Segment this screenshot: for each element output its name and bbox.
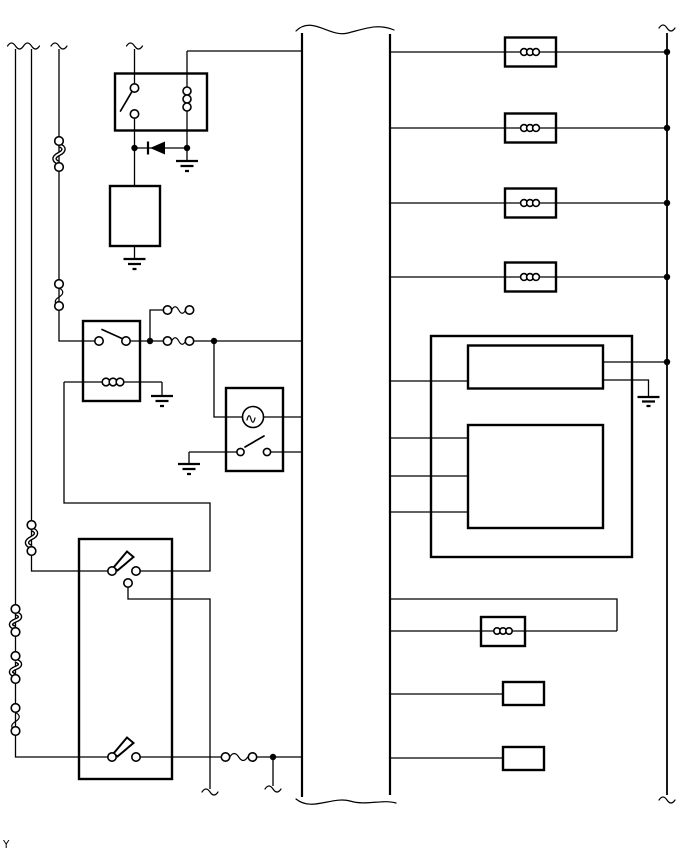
control-module-upper — [468, 346, 603, 389]
wire-break-icon — [659, 797, 675, 803]
fusible-link-icon — [11, 652, 20, 684]
ground-bars — [124, 259, 146, 269]
coil-box-loop — [390, 599, 617, 646]
wire-break-icon — [24, 43, 40, 49]
coil-loop — [533, 125, 540, 132]
page-corner-label: Y — [2, 839, 10, 851]
coil-loop — [183, 95, 191, 103]
ground-bars — [178, 464, 200, 474]
wire — [390, 599, 617, 631]
terminal — [163, 306, 171, 314]
ground-bars — [638, 397, 660, 406]
junction-dot — [131, 145, 137, 151]
wire-break-icon — [202, 789, 218, 795]
wire-break-icon — [127, 43, 143, 49]
wire-break-icon — [265, 786, 281, 792]
wire — [59, 49, 95, 341]
wire — [64, 382, 210, 571]
junction-dot — [664, 49, 670, 55]
connector-box — [503, 682, 544, 705]
inductor-coil-icon — [521, 125, 540, 132]
coil-loop — [506, 628, 512, 634]
ground-icon — [638, 397, 660, 406]
ground-bars — [151, 396, 173, 406]
wire-break-icon — [659, 25, 675, 31]
control-module-lower — [468, 425, 603, 528]
harness-break-icon — [296, 25, 394, 33]
fusible-link-icon — [55, 137, 64, 172]
terminal — [55, 280, 64, 289]
fuse-body — [172, 338, 186, 345]
junction-dot — [664, 359, 670, 365]
spare-fuse-icon — [163, 306, 193, 314]
coil-loop — [533, 274, 540, 281]
fusible-link-icon — [11, 605, 20, 637]
ground-bars — [176, 161, 198, 171]
switch-arm-icon — [121, 92, 133, 112]
fuse-icon — [221, 753, 256, 761]
terminal — [55, 137, 64, 146]
switch-arm-icon — [102, 330, 122, 339]
unit-box — [226, 388, 283, 471]
relay-1 — [115, 43, 302, 186]
terminal — [27, 547, 36, 556]
harness-break-icon — [296, 799, 396, 804]
wire-break-icon — [8, 43, 24, 49]
inductor-coil-icon — [521, 200, 540, 207]
terminal — [11, 675, 20, 684]
terminal — [185, 306, 193, 314]
relay-coil-icon — [102, 378, 124, 386]
terminal — [11, 727, 20, 736]
coil-loop — [183, 103, 191, 111]
junction-dot — [664, 274, 670, 280]
coil-loop — [116, 378, 124, 386]
terminal — [55, 302, 64, 311]
terminal — [248, 753, 256, 761]
terminal — [185, 337, 193, 345]
inductor-branches — [390, 38, 667, 292]
lever-arm-icon — [114, 552, 134, 571]
ground-icon — [176, 148, 198, 171]
wiring-diagram-page: Y — [0, 0, 688, 852]
diode-icon — [148, 142, 165, 155]
fuse-icon — [163, 337, 193, 345]
wire — [16, 49, 109, 757]
junction-dot — [664, 125, 670, 131]
wire — [150, 310, 163, 341]
junction-dot — [664, 200, 670, 206]
wiring-diagram: Y — [0, 0, 688, 852]
relay-2 — [64, 321, 210, 571]
fuse-pair — [147, 306, 302, 417]
terminal — [11, 605, 20, 614]
contact — [122, 337, 130, 345]
lamp-switch-unit — [178, 388, 302, 474]
wire-harness-trunk — [296, 25, 396, 804]
lamp-icon — [243, 407, 264, 428]
contact — [95, 337, 103, 345]
contact — [132, 567, 140, 575]
relay-coil-icon — [183, 87, 191, 111]
fuse-body — [172, 307, 186, 314]
contact — [130, 84, 138, 92]
terminal — [163, 337, 171, 345]
contact — [108, 567, 116, 575]
ground-icon — [151, 382, 173, 406]
inductor-coil-icon — [494, 628, 512, 634]
inductor-coil-icon — [521, 274, 540, 281]
contact — [237, 448, 244, 455]
box — [110, 186, 160, 246]
connector-boxes — [390, 682, 544, 770]
wire — [32, 49, 109, 571]
inductor-coil-icon — [521, 49, 540, 56]
wire-break-icon — [51, 43, 67, 49]
contact — [263, 448, 270, 455]
switch-arm-icon — [245, 436, 264, 447]
power-bus — [659, 25, 675, 803]
component-box — [110, 186, 160, 269]
contact — [132, 753, 140, 761]
two-lever-switch-unit — [79, 539, 302, 795]
diode-triangle — [150, 142, 165, 155]
terminal — [11, 628, 20, 637]
terminal — [221, 753, 229, 761]
control-unit — [390, 336, 667, 557]
fusible-link-icon — [27, 521, 36, 556]
connector-box — [503, 747, 544, 770]
contact — [130, 110, 138, 118]
terminal — [27, 521, 36, 530]
coil-loop — [183, 87, 191, 95]
ground-icon — [178, 452, 200, 474]
terminal — [11, 704, 20, 713]
relay-box — [115, 74, 207, 131]
terminal — [55, 163, 64, 172]
contact — [108, 753, 116, 761]
wire — [214, 341, 242, 417]
coil-loop — [533, 200, 540, 207]
fuse-body — [230, 754, 248, 761]
ground-icon — [124, 246, 146, 269]
wire — [603, 380, 649, 396]
terminal — [11, 652, 20, 661]
contact — [124, 579, 132, 587]
coil-loop — [533, 49, 540, 56]
lever-arm-icon — [114, 738, 134, 757]
